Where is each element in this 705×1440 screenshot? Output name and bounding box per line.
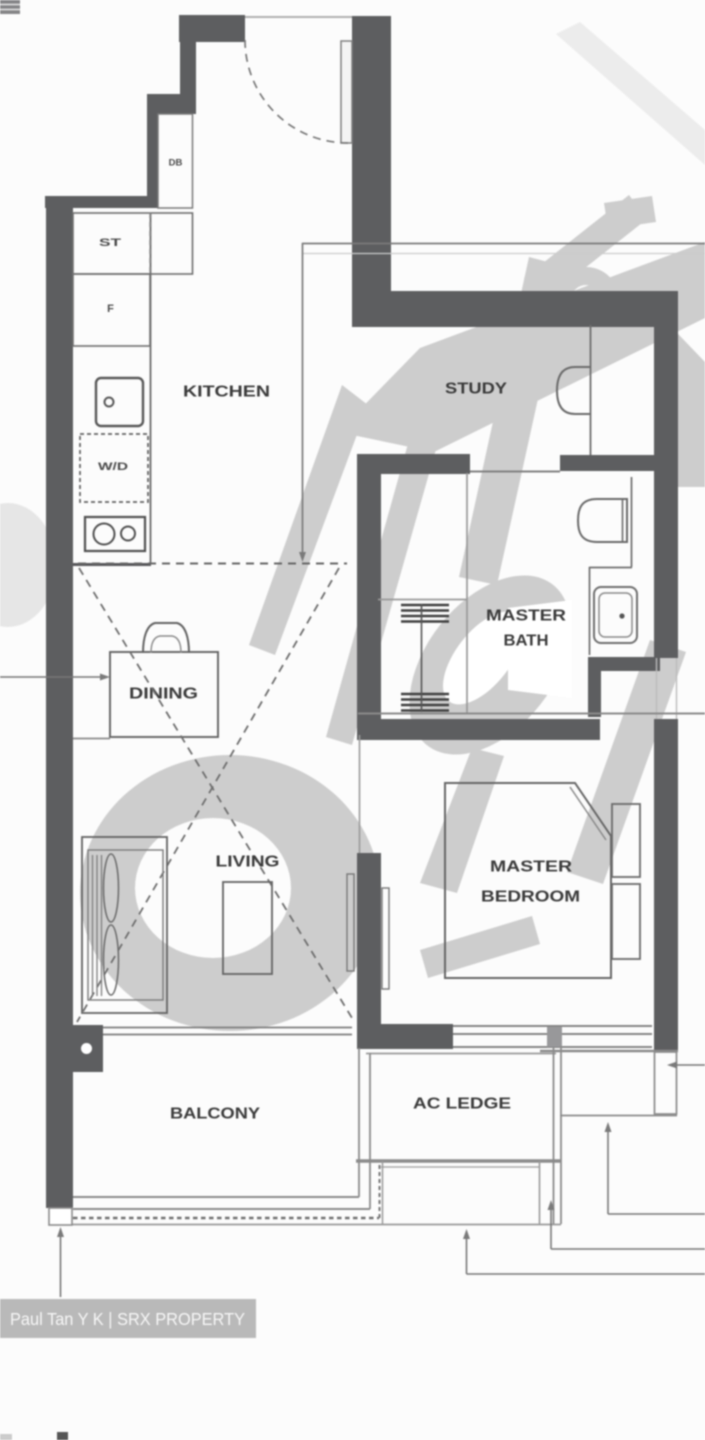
svg-text:BEDROOM: BEDROOM [481,889,580,906]
svg-text:DB: DB [169,158,183,169]
svg-text:ST: ST [99,237,121,249]
svg-text:AC LEDGE: AC LEDGE [413,1096,511,1113]
svg-text:F: F [107,303,114,315]
svg-text:LIVING: LIVING [216,854,280,871]
svg-text:MASTER: MASTER [486,608,567,625]
svg-text:W/D: W/D [98,461,128,473]
svg-text:Paul Tan Y K | SRX PROPERTY: Paul Tan Y K | SRX PROPERTY [10,1309,245,1329]
svg-text:BATH: BATH [504,633,549,650]
svg-text:STUDY: STUDY [445,381,507,398]
svg-text:KITCHEN: KITCHEN [183,384,270,401]
svg-text:BALCONY: BALCONY [170,1106,260,1123]
svg-text:DINING: DINING [129,686,198,703]
svg-text:MASTER: MASTER [490,859,573,876]
